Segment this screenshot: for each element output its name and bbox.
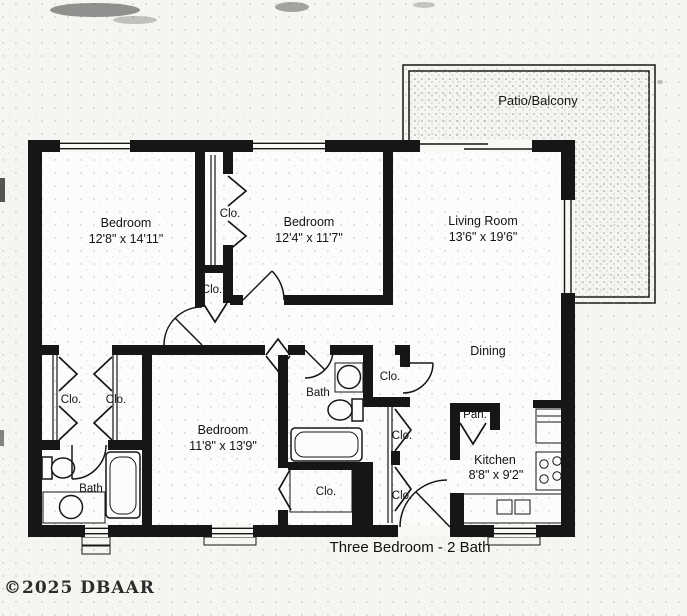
window: [561, 200, 575, 293]
wall: [108, 440, 152, 450]
patio-label: Patio/Balcony: [498, 93, 578, 108]
window: [494, 525, 536, 537]
bath-label: Bath: [306, 387, 330, 399]
wall: [112, 345, 205, 355]
wall: [288, 462, 363, 470]
window: [212, 525, 253, 537]
window: [60, 140, 130, 152]
bedroom-2-dims: 12'4" x 11'7": [275, 231, 343, 245]
living-room-label: Living Room: [448, 214, 517, 228]
wall: [363, 397, 410, 407]
scan-smudge: [0, 430, 4, 446]
wall: [561, 140, 575, 200]
watermark: ©2025 DBAAR: [4, 578, 155, 598]
sink-basin: [338, 366, 361, 389]
sliding-door: [420, 140, 532, 152]
wall: [278, 355, 288, 468]
bath-label: Bath: [79, 483, 103, 495]
plan-caption: Three Bedroom - 2 Bath: [330, 539, 491, 556]
wall: [561, 293, 575, 537]
bedroom-2-label: Bedroom: [284, 215, 335, 229]
wall: [28, 525, 575, 537]
pantry-label: Pan.: [463, 409, 487, 421]
dining-label: Dining: [470, 344, 505, 358]
wall: [284, 295, 393, 305]
wall: [391, 451, 400, 465]
sink-basin: [60, 496, 83, 519]
floor-plan-canvas: Patio/Balcony Bedroom 12'8" x 14'11" Bed…: [0, 0, 687, 616]
living-room-dims: 13'6" x 19'6": [449, 230, 518, 244]
closet-label: Clo.: [392, 490, 412, 502]
scan-noise-texture: [0, 0, 687, 616]
wall: [352, 462, 373, 525]
wall: [205, 345, 265, 355]
wall: [450, 493, 464, 525]
closet-label: Clo.: [61, 394, 81, 406]
wall: [42, 440, 60, 450]
bedroom-3-dims: 11'8" x 13'9": [189, 439, 257, 453]
closet-label: Clo.: [392, 430, 412, 442]
wall: [230, 295, 243, 305]
scan-smudge: [275, 2, 309, 12]
toilet-bowl: [328, 400, 352, 420]
scan-smudge: [50, 3, 140, 17]
scan-smudge: [657, 80, 663, 84]
closet-label: Clo.: [220, 208, 240, 220]
entry-opening: [398, 525, 450, 537]
closet-label: Clo.: [316, 486, 336, 498]
toilet-bowl: [52, 458, 75, 478]
bedroom-1-dims: 12'8" x 14'11": [89, 232, 164, 246]
wall: [195, 265, 233, 273]
window: [85, 525, 108, 537]
wall: [278, 510, 288, 525]
floor-plan-drawing: Patio/Balcony Bedroom 12'8" x 14'11" Bed…: [0, 0, 687, 616]
wall: [533, 400, 561, 408]
bedroom-1-label: Bedroom: [101, 216, 152, 230]
wall: [28, 140, 42, 537]
closet-label: Clo.: [202, 284, 222, 296]
scan-smudge: [113, 16, 157, 24]
closet-label: Clo.: [106, 394, 126, 406]
window: [253, 140, 325, 152]
bedroom-3-label: Bedroom: [198, 423, 249, 437]
closet-label: Clo.: [380, 371, 400, 383]
toilet-tank: [42, 457, 52, 479]
scan-smudge: [0, 178, 5, 202]
wall: [288, 345, 305, 355]
bathtub: [291, 428, 362, 461]
scan-smudge: [413, 2, 435, 8]
wall: [330, 345, 373, 355]
kitchen-dims: 8'8" x 9'2": [469, 468, 524, 482]
wall: [223, 152, 233, 174]
wall: [42, 345, 59, 355]
toilet-tank: [352, 399, 363, 421]
wall: [490, 403, 500, 430]
wall: [383, 152, 393, 305]
kitchen-label: Kitchen: [474, 453, 516, 467]
